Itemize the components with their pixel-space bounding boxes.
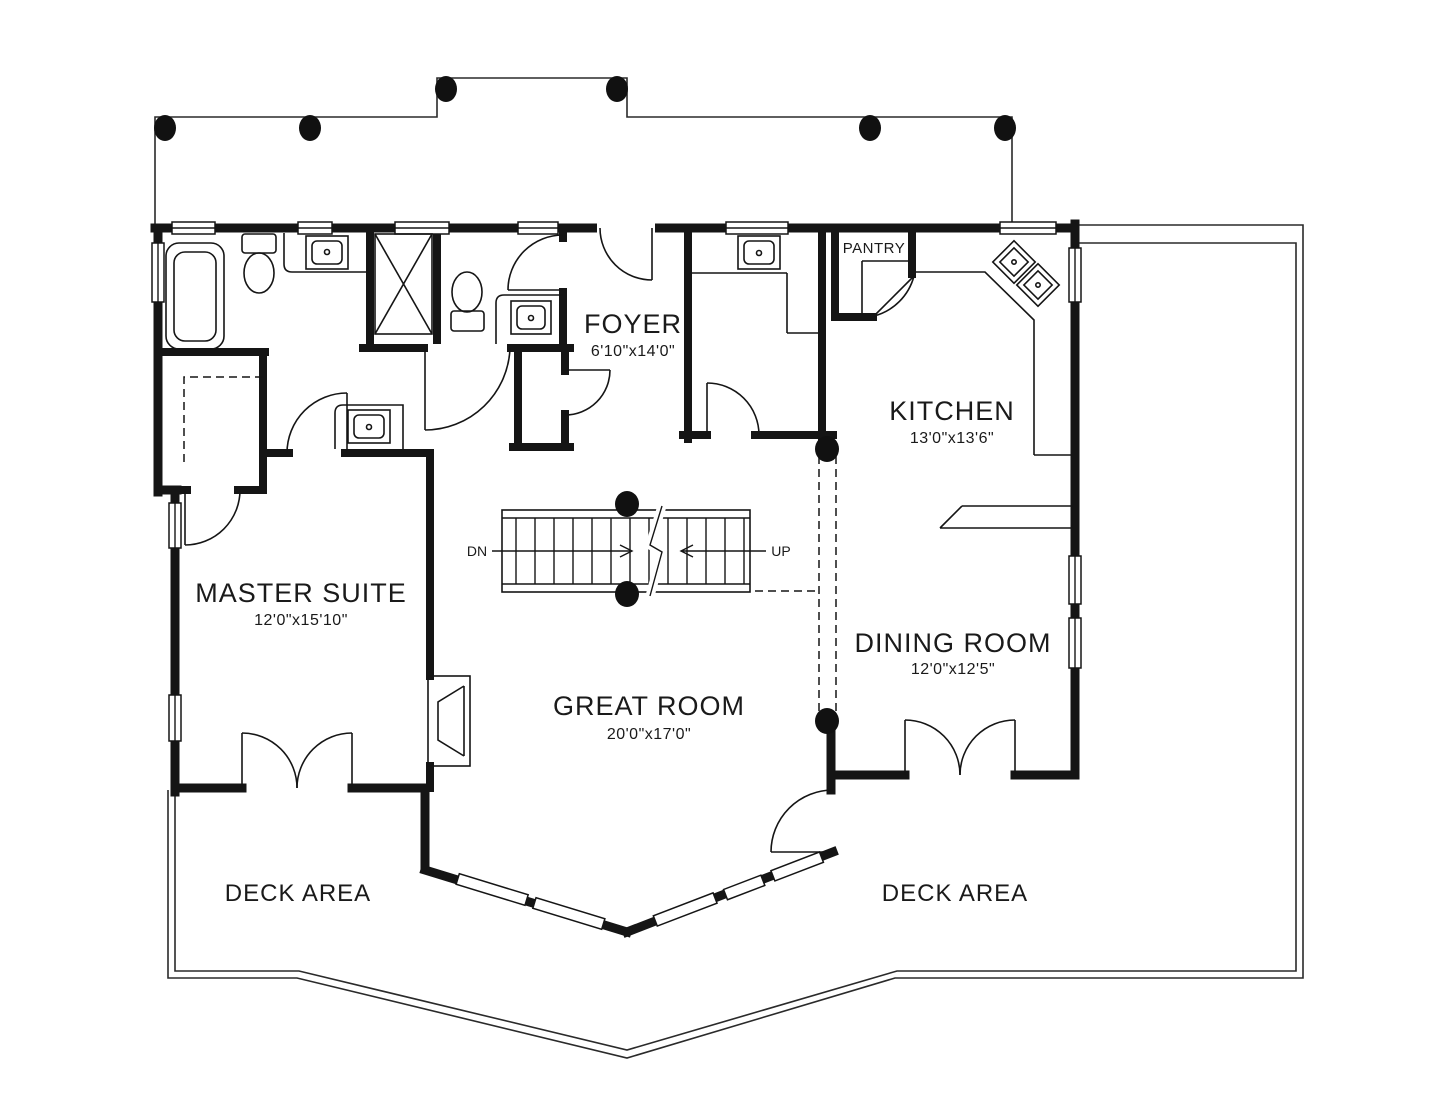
wall-foyer-closet [513,348,570,447]
window-top-4 [518,222,558,234]
deck-left-label: DECK AREA [225,880,371,907]
vanity-sink-3 [335,405,403,449]
fireplace [428,676,470,766]
room-pantry: PANTRY [843,240,905,257]
room-kitchen: KITCHEN 13'0"x13'6" [889,396,1015,447]
vanity-sink-1 [284,233,368,272]
window-angled-right-3 [771,852,823,881]
window-angled-left-1 [456,874,528,906]
window-top-5 [726,222,788,234]
vanity-sink-2 [496,295,563,344]
window-top-2 [298,222,332,234]
window-left-3 [169,695,181,741]
room-foyer: FOYER 6'10"x14'0" [584,309,682,360]
window-left-2 [169,503,181,548]
window-angled-right-2 [724,875,765,900]
window-left-1 [152,243,164,302]
hall-opening-door [425,348,510,430]
kitchen-dims: 13'0"x13'6" [910,430,994,447]
stairs-down-label: DN [467,543,487,559]
foyer-dims: 6'10"x14'0" [591,343,675,360]
front-door [600,228,652,280]
room-dining-room: DINING ROOM 12'0"x12'5" [855,628,1052,678]
greatroom-deck-door [771,790,833,852]
deck-outline-outer [168,225,1303,1058]
top-deck-outline [155,78,1012,226]
dining-room-dims: 12'0"x12'5" [911,661,995,678]
window-angled-left-2 [533,898,605,930]
shower [375,234,432,334]
window-top-1 [172,222,215,234]
bathtub [166,243,224,349]
deck-right-label: DECK AREA [882,880,1028,907]
floor-plan-drawing: DN UP FOYER 6'10"x14'0" KITCHEN 13'0"x13… [0,0,1445,1117]
master-suite-dims: 12'0"x15'10" [254,612,348,629]
laundry-door [707,383,759,435]
stairs-up-label: UP [771,543,790,559]
great-room-dims: 20'0"x17'0" [607,726,691,743]
dining-room-label: DINING ROOM [855,628,1052,658]
window-right-3 [1069,618,1081,668]
pantry-label: PANTRY [843,240,905,257]
deck-area-right: DECK AREA [882,880,1028,907]
master-french-doors [242,733,352,788]
toilet-icon [242,234,276,293]
master-suite-door [287,393,347,453]
dashed-lines [184,377,836,714]
foyer-closet-door [565,370,610,415]
dashed-closet-shelf [184,377,263,462]
pantry-door [874,276,914,316]
room-great-room: GREAT ROOM 20'0"x17'0" [553,691,745,743]
master-suite-label: MASTER SUITE [195,578,407,608]
kitchen-label: KITCHEN [889,396,1015,426]
foyer-label: FOYER [584,309,682,339]
closet-door [185,490,240,545]
labels: FOYER 6'10"x14'0" KITCHEN 13'0"x13'6" PA… [195,240,1051,907]
deck-area-left: DECK AREA [225,880,371,907]
floor-plan-page: DN UP FOYER 6'10"x14'0" KITCHEN 13'0"x13… [0,0,1445,1117]
window-angled-right-1 [653,893,717,926]
deck-outline-inner [175,243,1296,1050]
room-master-suite: MASTER SUITE 12'0"x15'10" [195,578,407,629]
great-room-label: GREAT ROOM [553,691,745,721]
window-right-2 [1069,556,1081,604]
window-right-1 [1069,248,1081,302]
dining-french-doors [905,720,1015,775]
front-door-opening [597,221,655,235]
bath-door [508,235,563,290]
interior-walls [158,228,912,788]
window-top-6 [1000,222,1056,234]
laundry-sink-counter [690,236,820,333]
toilet-2-icon [451,272,484,331]
kitchen-sink [993,241,1059,306]
window-top-3 [395,222,449,234]
